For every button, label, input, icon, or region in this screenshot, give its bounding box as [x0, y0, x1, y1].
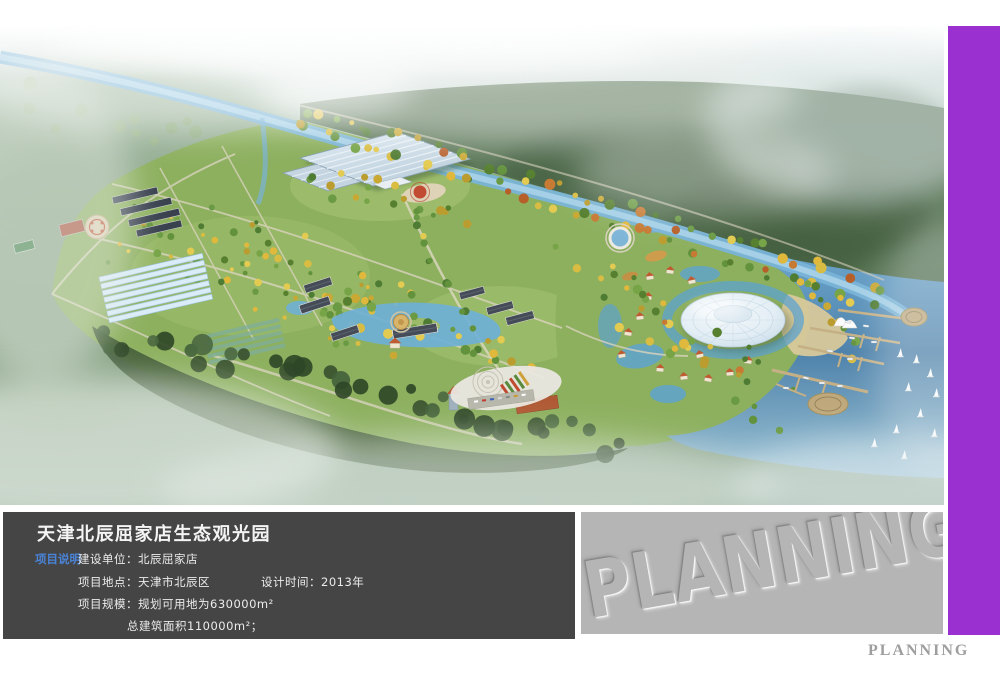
- section-label: 项目说明: [35, 551, 81, 567]
- construction-unit: 建设单位：北辰屈家店: [78, 551, 198, 567]
- aerial-rendering: [0, 26, 944, 505]
- design-time: 设计时间：2013年: [261, 574, 364, 590]
- project-scale: 项目规模：规划可用地为630000m²: [78, 596, 274, 612]
- embossed-planning-text: PLANNING: [581, 512, 943, 634]
- circular-pool: [606, 224, 634, 252]
- circular-pier: [808, 393, 848, 415]
- aerial-rendering-svg: [0, 26, 944, 505]
- planning-logo: PLANNING: [868, 642, 969, 660]
- project-location: 项目地点：天津市北辰区: [78, 574, 210, 590]
- accent-bar: [948, 26, 1000, 635]
- project-title: 天津北辰屈家店生态观光园: [37, 520, 271, 546]
- presentation-board: 天津北辰屈家店生态观光园 项目说明 建设单位：北辰屈家店 项目地点：天津市北辰区…: [0, 0, 1000, 678]
- project-scale-cont: 总建筑面积110000m²；: [127, 618, 263, 634]
- planning-watermark-panel: PLANNING: [581, 512, 943, 634]
- project-info-panel: 天津北辰屈家店生态观光园 项目说明 建设单位：北辰屈家店 项目地点：天津市北辰区…: [3, 512, 575, 639]
